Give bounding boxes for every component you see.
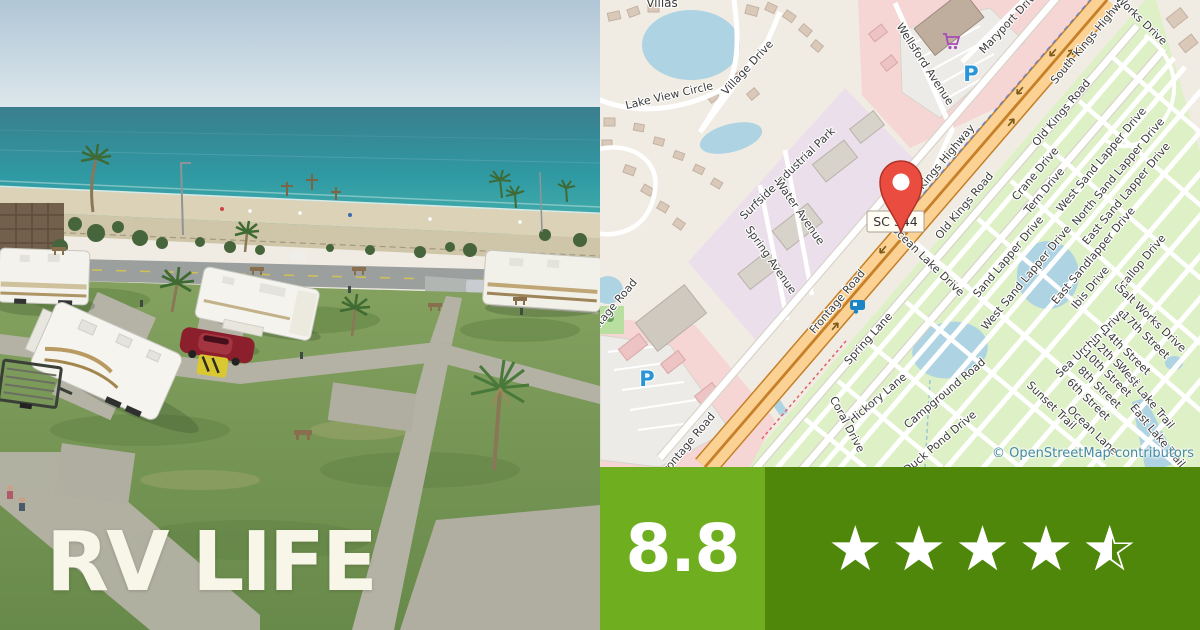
star-half-icon: ☆★ xyxy=(1082,518,1138,580)
parking-icon: P xyxy=(963,62,978,86)
rating-score-box: 8.8 xyxy=(600,467,765,630)
campground-photo: RV LIFE xyxy=(0,0,600,630)
beach-cart xyxy=(290,252,306,261)
yellow-cart xyxy=(196,354,228,378)
street-label: Villas xyxy=(646,0,678,10)
brand-wordmark: RV LIFE xyxy=(46,522,375,604)
map-attribution: © OpenStreetMap contributors xyxy=(992,446,1194,461)
rating-bar: 8.8 ★★★★☆★ xyxy=(600,467,1200,630)
map-illustration: VillasLake View CircleVillage DriveMaryp… xyxy=(600,0,1200,467)
star-full-icon: ★ xyxy=(828,512,884,585)
star-rating-box: ★★★★☆★ xyxy=(765,467,1200,630)
star-rating: ★★★★☆★ xyxy=(824,518,1142,580)
parking-icon: P xyxy=(639,367,654,391)
sky xyxy=(0,0,600,108)
rv-motorhome xyxy=(0,248,90,306)
right-panel: VillasLake View CircleVillage DriveMaryp… xyxy=(600,0,1200,630)
star-full-icon: ★ xyxy=(1018,512,1074,585)
star-full-icon: ★ xyxy=(891,512,947,585)
social-card: RV LIFE xyxy=(0,0,1200,630)
star-full-icon: ★ xyxy=(955,512,1011,585)
rv-right xyxy=(482,250,600,312)
rating-score: 8.8 xyxy=(626,510,740,587)
map-panel: VillasLake View CircleVillage DriveMaryp… xyxy=(600,0,1200,467)
